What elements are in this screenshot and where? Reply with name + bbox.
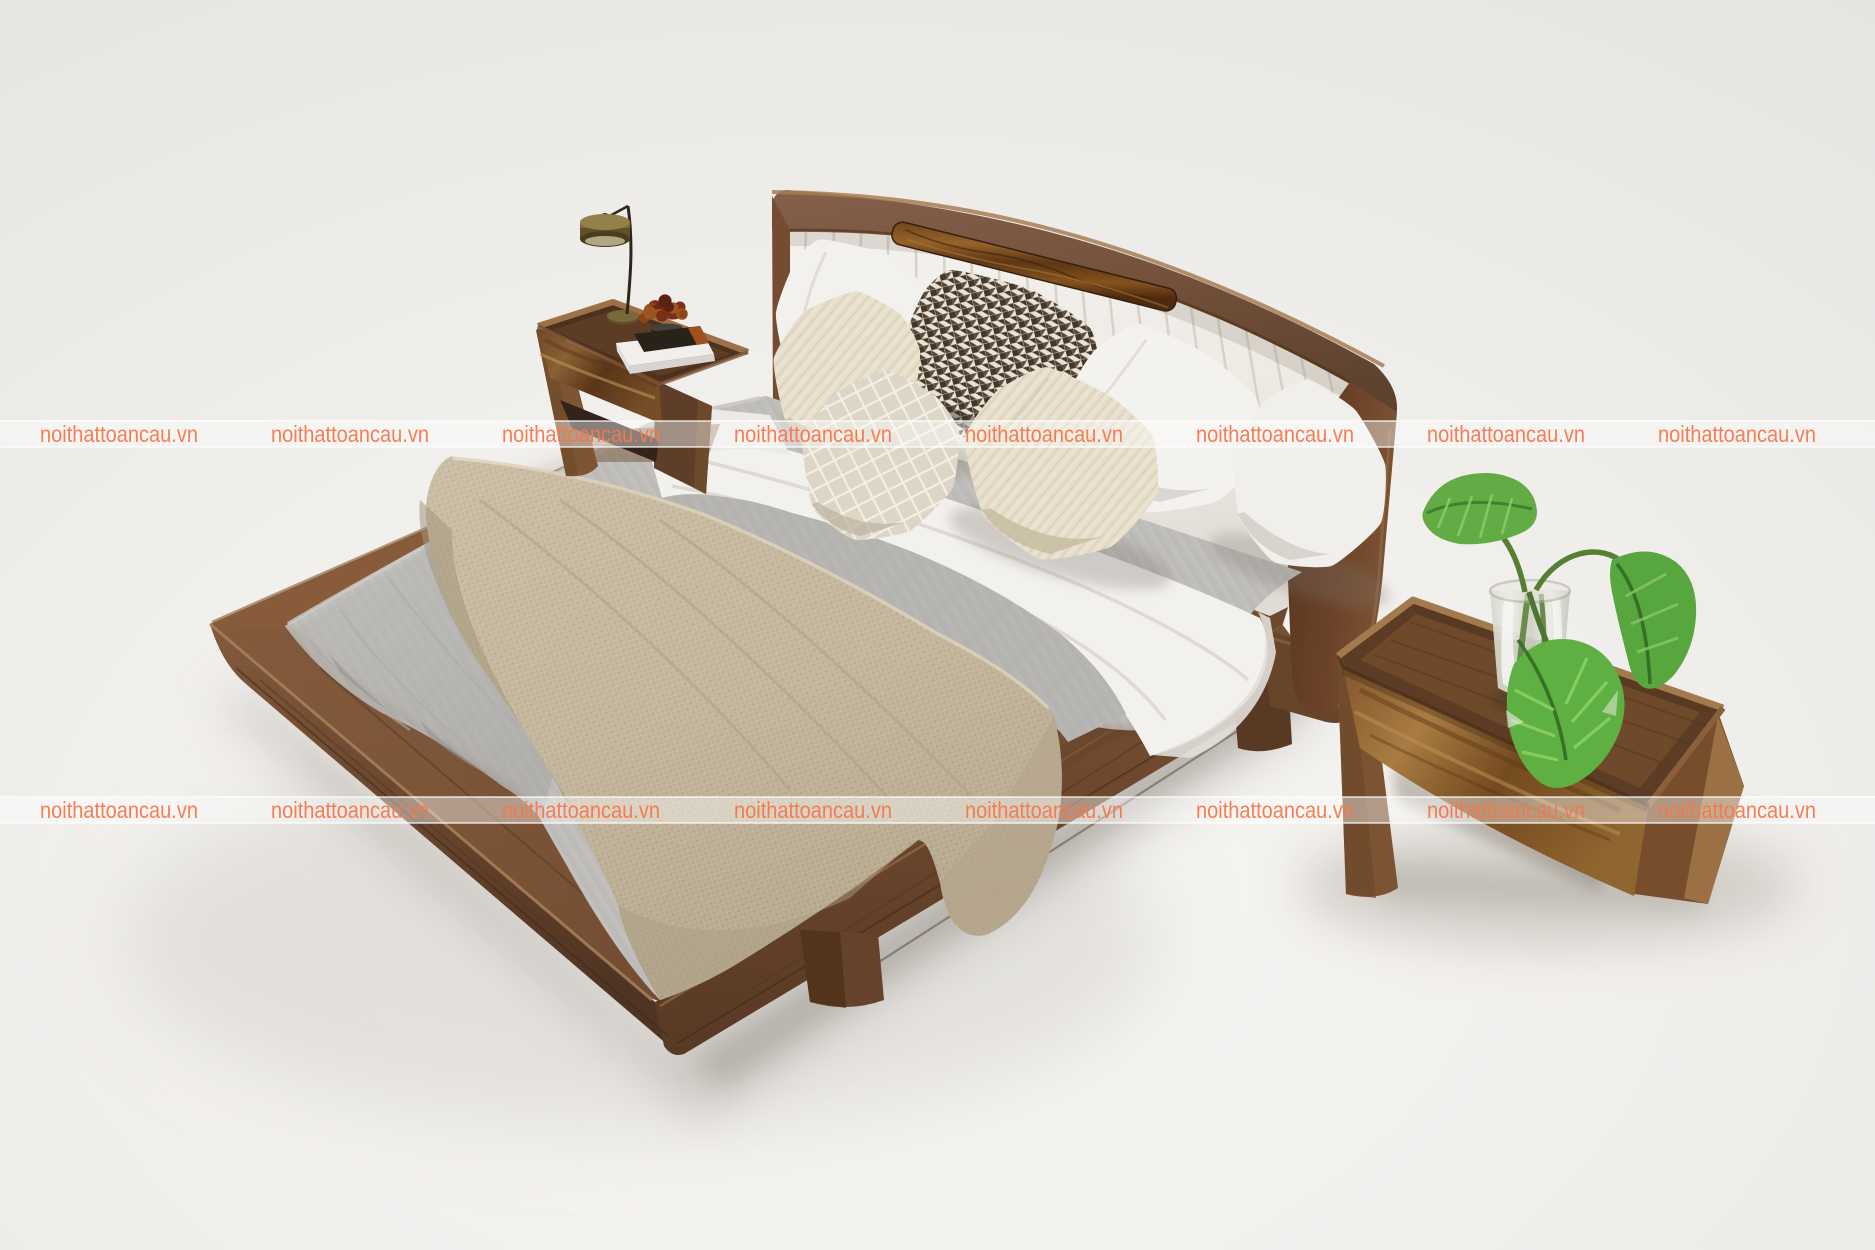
svg-text:noithattoancau.vn: noithattoancau.vn [1427, 797, 1585, 823]
svg-text:noithattoancau.vn: noithattoancau.vn [502, 421, 660, 447]
svg-text:noithattoancau.vn: noithattoancau.vn [965, 421, 1123, 447]
svg-text:noithattoancau.vn: noithattoancau.vn [1658, 797, 1816, 823]
svg-text:noithattoancau.vn: noithattoancau.vn [1658, 421, 1816, 447]
svg-text:noithattoancau.vn: noithattoancau.vn [271, 797, 429, 823]
svg-text:noithattoancau.vn: noithattoancau.vn [734, 797, 892, 823]
svg-text:noithattoancau.vn: noithattoancau.vn [734, 421, 892, 447]
svg-text:noithattoancau.vn: noithattoancau.vn [502, 797, 660, 823]
svg-text:noithattoancau.vn: noithattoancau.vn [1196, 797, 1354, 823]
svg-text:noithattoancau.vn: noithattoancau.vn [1427, 421, 1585, 447]
svg-text:noithattoancau.vn: noithattoancau.vn [40, 797, 198, 823]
svg-text:noithattoancau.vn: noithattoancau.vn [40, 421, 198, 447]
svg-text:noithattoancau.vn: noithattoancau.vn [271, 421, 429, 447]
svg-text:noithattoancau.vn: noithattoancau.vn [1196, 421, 1354, 447]
svg-text:noithattoancau.vn: noithattoancau.vn [965, 797, 1123, 823]
